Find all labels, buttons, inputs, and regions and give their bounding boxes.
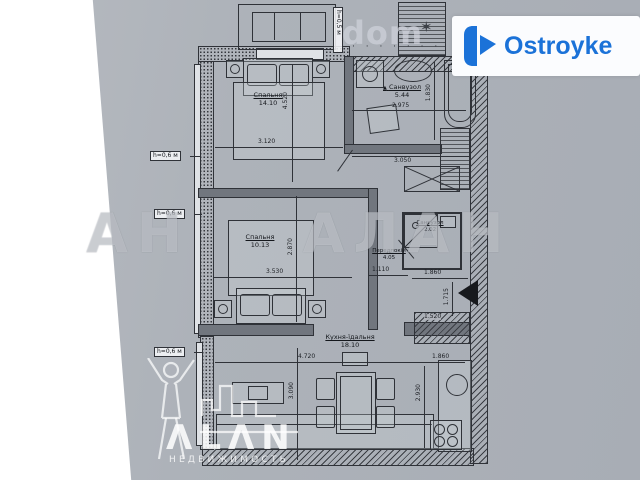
dim-line xyxy=(434,62,435,140)
wall-bath-bottom xyxy=(344,144,442,154)
lamp-icon xyxy=(218,304,228,314)
chair-icon xyxy=(376,378,395,400)
alan-logo-subtitle: НЕДВИЖИМОСТЬ xyxy=(169,455,289,465)
kitchen-sink-icon xyxy=(446,374,468,396)
dim-label: 1.110 xyxy=(372,267,389,273)
chair-icon xyxy=(376,406,395,428)
dim-label: 1.860 xyxy=(424,270,441,276)
dim-label: 2.975 xyxy=(392,103,409,109)
leader-line xyxy=(190,156,200,157)
washing-machine-drum-icon xyxy=(362,66,378,82)
height-label: h=0,6 м xyxy=(154,347,185,357)
dim-line xyxy=(412,278,468,279)
ostroyke-logo-icon xyxy=(462,24,498,68)
burner-icon xyxy=(447,436,458,447)
balcony-bench-divider xyxy=(300,12,301,40)
pillow-icon xyxy=(240,294,270,316)
sideboard-icon xyxy=(342,352,368,366)
chair-icon xyxy=(316,378,335,400)
wall-bath-left xyxy=(344,56,354,154)
chair-icon xyxy=(316,406,335,428)
dim-label: 1.860 xyxy=(432,354,449,360)
drain-triangle-icon: ▲ xyxy=(383,85,387,91)
burner-icon xyxy=(447,424,458,435)
dom-watermark-dots: · · · · · · · xyxy=(352,42,441,52)
dim-line xyxy=(292,64,293,182)
burner-icon xyxy=(434,436,445,447)
dim-label: 3.120 xyxy=(258,139,275,145)
window-left xyxy=(194,64,201,334)
dim-label: 1.520 xyxy=(424,314,441,320)
room-label-bedroom1: Спальня 14.10 xyxy=(238,92,298,108)
agency-watermark: АН АЛАН xyxy=(86,202,512,265)
room-label-bathroom: ▲ Санвузол 5.44 xyxy=(370,84,434,100)
dim-line xyxy=(424,366,425,448)
wall-bedrooms-divider xyxy=(198,188,378,198)
lamp-icon xyxy=(312,304,322,314)
dim-line xyxy=(452,282,453,316)
entry-shaft-hatch xyxy=(414,312,470,344)
dim-line xyxy=(368,275,408,276)
lamp-icon xyxy=(316,64,326,74)
floorplan-photo: 3.120 4.520 2.975 3.050 1.830 3.530 2.87… xyxy=(0,0,640,480)
dim-line xyxy=(352,156,470,157)
dim-line xyxy=(214,277,352,278)
dim-label: 3.050 xyxy=(394,158,411,164)
sink-icon xyxy=(394,60,432,82)
height-label: h=0,6 м xyxy=(150,151,181,161)
closet-icon xyxy=(404,166,460,192)
balcony-bench-divider xyxy=(274,12,275,40)
balcony-bench xyxy=(252,12,326,42)
dim-line xyxy=(215,147,343,148)
ostroyke-logo-text: Ostroyke xyxy=(504,32,612,61)
room-label-kitchen: Кухня-їдальня 18.10 xyxy=(310,334,390,350)
wall-kitchen-left-piece xyxy=(198,324,314,336)
alan-logo-text: ΛLΛN xyxy=(166,418,297,458)
pillow-icon xyxy=(272,294,302,316)
star-icon: ✶ xyxy=(420,18,433,36)
dim-label: 3.530 xyxy=(266,269,283,275)
ostroyke-logo-box: Ostroyke xyxy=(452,16,640,76)
dim-label: 2.930 xyxy=(416,384,422,401)
dim-line xyxy=(352,110,466,111)
leader-line xyxy=(194,352,202,353)
entrance-marker-icon xyxy=(458,280,478,306)
dining-table-inner xyxy=(340,376,372,430)
burner-icon xyxy=(434,424,445,435)
lamp-icon xyxy=(230,64,240,74)
dim-label: 1.715 xyxy=(444,288,450,305)
